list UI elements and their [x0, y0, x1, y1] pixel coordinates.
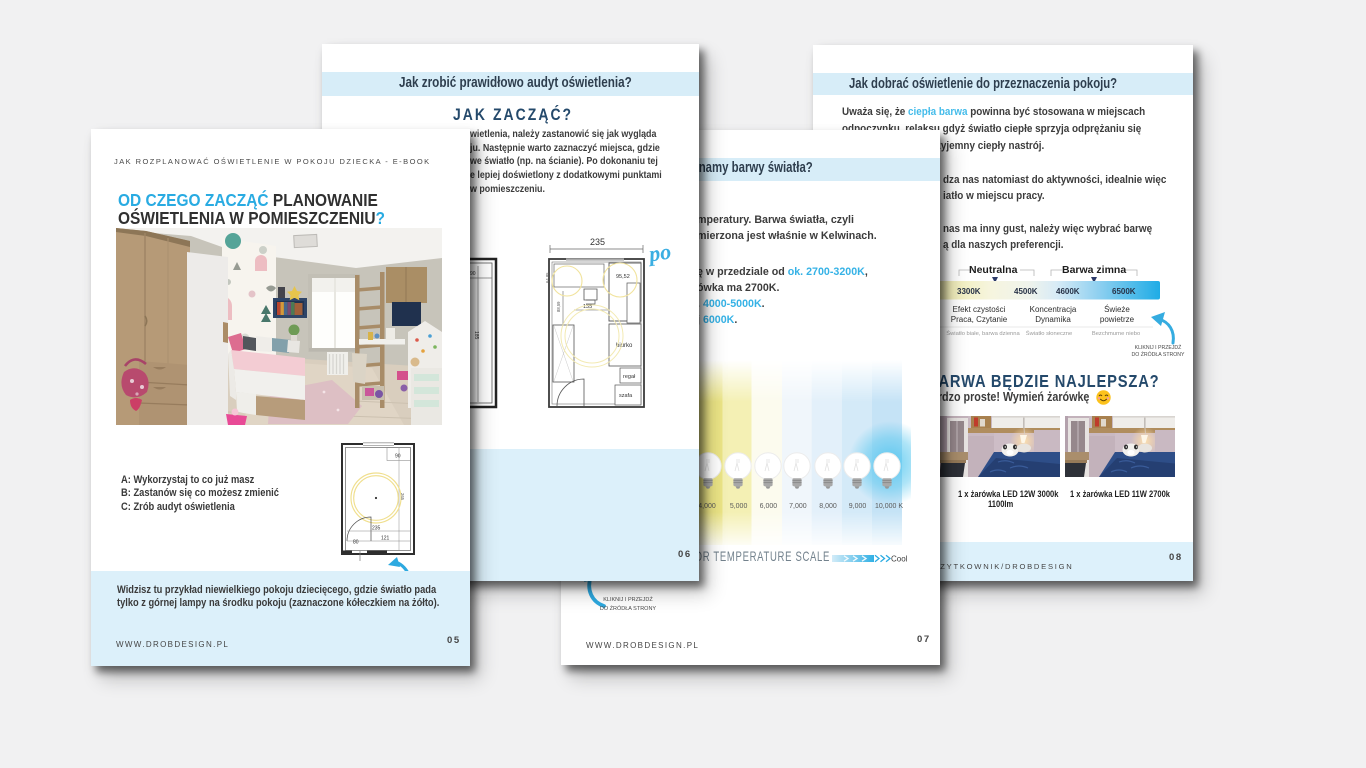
- svg-text:235: 235: [372, 526, 381, 532]
- svg-text:szafa: szafa: [619, 393, 633, 399]
- svg-text:Bezchmurne niebo: Bezchmurne niebo: [1092, 331, 1140, 337]
- svg-text:Świeże: Świeże: [1104, 305, 1130, 314]
- svg-text:5,000: 5,000: [730, 503, 748, 510]
- svg-text:Neutralna: Neutralna: [969, 264, 1018, 276]
- svg-text:3300K: 3300K: [957, 287, 981, 296]
- svg-text:90: 90: [395, 454, 401, 460]
- svg-text:90: 90: [470, 271, 476, 277]
- svg-text:biurko: biurko: [616, 343, 633, 349]
- svg-text:Efekt czystości: Efekt czystości: [953, 305, 1006, 314]
- svg-text:Koncentracja: Koncentracja: [1030, 305, 1077, 314]
- svg-text:10,000 K: 10,000 K: [875, 503, 903, 510]
- svg-text:9,000: 9,000: [849, 503, 867, 510]
- svg-text:regał: regał: [623, 374, 636, 380]
- svg-text:Światło białe, barwa dzienna: Światło białe, barwa dzienna: [946, 329, 1020, 337]
- svg-text:95,52: 95,52: [616, 274, 630, 280]
- svg-text:Dynamika: Dynamika: [1035, 315, 1071, 324]
- svg-text:6500K: 6500K: [1112, 287, 1136, 296]
- svg-text:265: 265: [400, 493, 405, 501]
- svg-text:4,000: 4,000: [698, 503, 716, 510]
- svg-text:4600K: 4600K: [1056, 287, 1080, 296]
- svg-text:121: 121: [381, 536, 390, 542]
- svg-text:powietrze: powietrze: [1100, 315, 1135, 324]
- svg-text:80: 80: [353, 540, 359, 546]
- svg-text:Cool: Cool: [891, 555, 908, 564]
- svg-text:185: 185: [473, 331, 479, 340]
- svg-text:88,59: 88,59: [556, 301, 561, 312]
- svg-text:8,000: 8,000: [819, 503, 837, 510]
- svg-text:Barwa zimna: Barwa zimna: [1062, 264, 1126, 276]
- svg-text:7,000: 7,000: [789, 503, 807, 510]
- svg-text:64,85: 64,85: [546, 272, 550, 283]
- svg-text:Praca, Czytanie: Praca, Czytanie: [951, 315, 1008, 324]
- svg-text:Światło słoneczne: Światło słoneczne: [1026, 329, 1072, 337]
- svg-text:4500K: 4500K: [1014, 287, 1038, 296]
- svg-text:235: 235: [590, 237, 605, 247]
- svg-text:6,000: 6,000: [760, 503, 778, 510]
